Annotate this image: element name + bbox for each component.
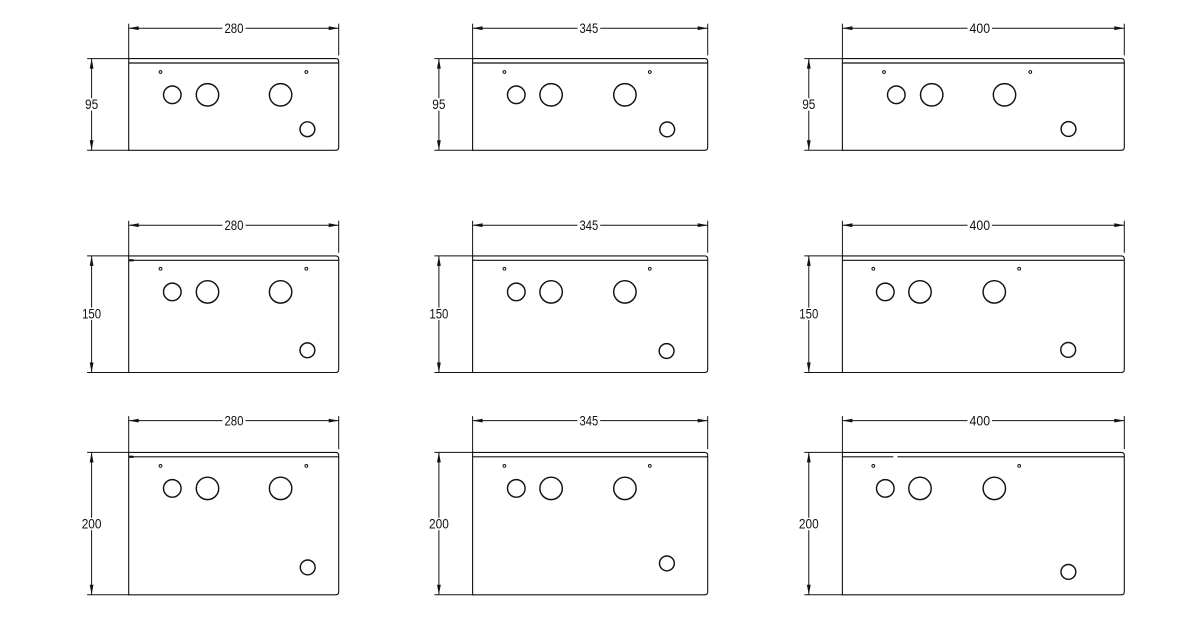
svg-text:280: 280: [224, 21, 243, 36]
svg-text:345: 345: [580, 413, 599, 428]
svg-text:400: 400: [970, 218, 991, 233]
svg-text:95: 95: [85, 97, 98, 112]
svg-text:280: 280: [224, 413, 243, 428]
svg-text:280: 280: [224, 218, 243, 233]
svg-text:150: 150: [429, 307, 448, 322]
svg-text:95: 95: [432, 97, 445, 112]
svg-text:345: 345: [580, 218, 599, 233]
svg-text:200: 200: [799, 517, 819, 532]
svg-text:150: 150: [82, 307, 101, 322]
svg-text:95: 95: [802, 97, 815, 112]
svg-text:200: 200: [82, 517, 102, 532]
svg-text:400: 400: [970, 21, 991, 36]
svg-text:400: 400: [970, 413, 991, 428]
svg-text:345: 345: [580, 21, 599, 36]
svg-text:200: 200: [429, 517, 449, 532]
svg-text:150: 150: [799, 307, 818, 322]
